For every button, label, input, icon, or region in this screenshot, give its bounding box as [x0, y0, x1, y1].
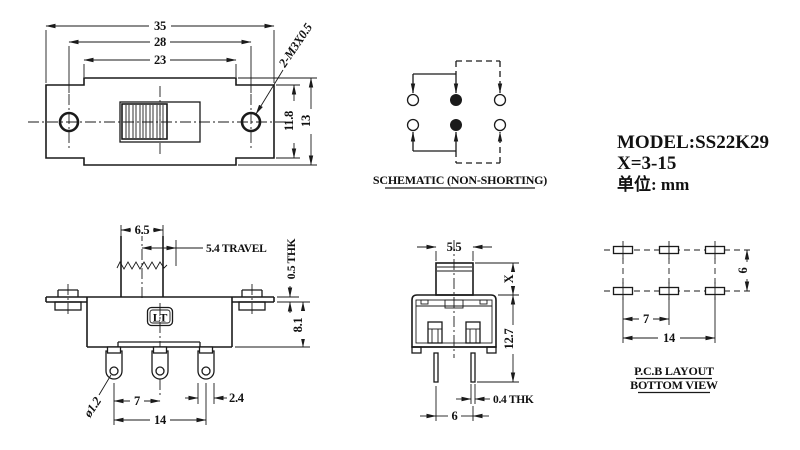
schematic-title: SCHEMATIC (NON-SHORTING): [373, 173, 547, 187]
schematic-view: SCHEMATIC (NON-SHORTING): [373, 61, 547, 188]
dim-knob-6-5: 6.5: [135, 223, 150, 237]
dim-pin-span-14: 14: [154, 413, 167, 427]
dim-width-35: 35: [154, 19, 166, 33]
dim-body-height-12-7: 12.7: [502, 329, 516, 350]
contact-post-right: [466, 322, 480, 343]
dim-side-knob-5-5: 5.5: [447, 240, 462, 254]
side-knob: [436, 263, 473, 295]
dim-pin-pitch-7: 7: [134, 394, 140, 408]
technical-drawing: 35 28 23 11.8 13 2-M3X0.5 SCHEMATIC (NON…: [0, 0, 800, 450]
pcb-layout: 6 7 14 P.C.B LAYOUT BOTTOM VIEW: [604, 241, 754, 393]
front-view: 6.5 5.4 TRAVEL LT: [46, 223, 310, 427]
brand-logo: LT: [148, 308, 173, 326]
terminal-pole2-common: [450, 119, 462, 131]
dim-pin-width-2-4: 2.4: [229, 391, 245, 405]
dim-body-height-8-1: 8.1: [291, 318, 305, 333]
pcb-subtitle: BOTTOM VIEW: [630, 378, 718, 392]
dim-pin-thk: 0.4 THK: [493, 394, 534, 406]
dim-pcb-row-6: 6: [736, 267, 750, 273]
x-range-label: X=3-15: [617, 153, 676, 174]
terminal-right: [198, 347, 214, 379]
terminal-center: [152, 347, 168, 379]
dim-flange-thk: 0.5 THK: [286, 238, 298, 279]
dim-knob-height-x: X: [502, 274, 516, 283]
model-label: MODEL:SS22K29: [617, 132, 769, 153]
dim-hole-span-28: 28: [154, 35, 166, 49]
terminal-left: [106, 347, 122, 379]
logo-text: LT: [153, 311, 168, 325]
contact-post-left: [428, 322, 442, 343]
side-pin-right: [471, 353, 475, 382]
terminal-pole2-a: [408, 120, 419, 131]
top-view: 35 28 23 11.8 13 2-M3X0.5: [28, 19, 317, 165]
dim-slot-span-23: 23: [154, 53, 166, 67]
dim-pcb-col-7: 7: [643, 312, 649, 326]
pin-hole-callout: ø1.2: [80, 395, 104, 421]
knob-hatch: [126, 105, 163, 138]
dim-height-13: 13: [299, 115, 313, 127]
terminal-pole1-b: [495, 95, 506, 106]
thread-callout: 2-M3X0.5: [275, 21, 315, 71]
terminal-pole2-b: [495, 120, 506, 131]
dim-travel: 5.4 TRAVEL: [206, 243, 267, 255]
mount-ear-right: [239, 284, 265, 314]
mount-ear-left: [55, 284, 81, 314]
side-pin-left: [434, 353, 438, 382]
unit-label: 单位: mm: [617, 174, 689, 194]
terminal-pole1-common: [450, 94, 462, 106]
terminal-pole1-a: [408, 95, 419, 106]
dim-pcb-span-14: 14: [663, 331, 676, 345]
info-block: MODEL:SS22K29 X=3-15 单位: mm: [617, 132, 769, 194]
pcb-title: P.C.B LAYOUT: [634, 364, 714, 378]
drawing-sheet: 35 28 23 11.8 13 2-M3X0.5 SCHEMATIC (NON…: [0, 0, 800, 450]
dim-side-pin-pitch-6: 6: [452, 409, 458, 423]
side-view: 5.5 X 12.7 0.4 THK 6: [412, 240, 534, 423]
dim-height-11-8: 11.8: [282, 111, 296, 131]
